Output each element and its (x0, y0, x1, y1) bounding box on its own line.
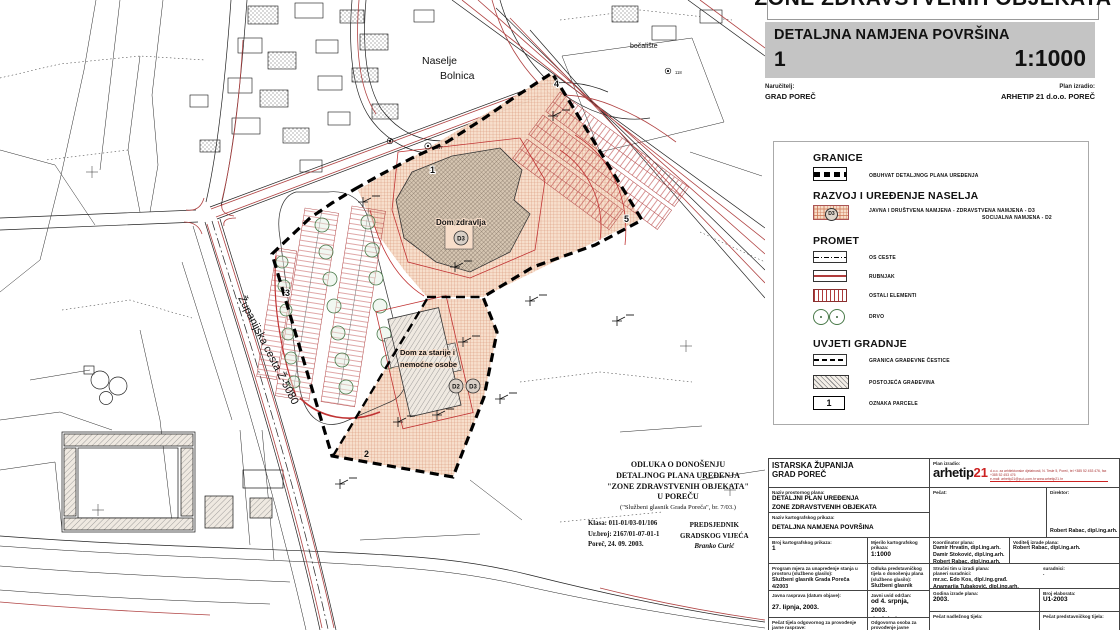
stamp-authority-label: Pečat nadležnog tijela: (933, 614, 1036, 620)
label-naselje: Naselje (422, 55, 457, 67)
parcel-number-sample: 1 (826, 398, 831, 408)
plan-name-1: DETALJNI PLAN UREĐENJA (772, 495, 926, 504)
cell-plan-name: Naziv prostornog plana: DETALJNI PLAN UR… (768, 487, 930, 513)
label-bocaliste: bočalište (630, 43, 658, 50)
survey-point-118-label: 118 (675, 70, 682, 75)
lead-name: Robert Rabac, dipl.ing.arh. (1013, 545, 1116, 552)
badge-d2-zone2: D2 (452, 385, 460, 391)
signature-name: Branko Curić (680, 541, 749, 552)
signature-role-1: PREDSJEDNIK (680, 520, 749, 531)
cell-public-debate: Javna rasprava (datum objave): 27. lipnj… (768, 590, 868, 618)
legend-granica-swatch (813, 354, 847, 366)
program-value-1: Službeni glasnik Grada Poreča (772, 577, 864, 584)
sheet-scale: 1:1000 (1014, 47, 1086, 70)
responsible-person-label: Odgovorna osoba za provođenje javne rasp… (871, 620, 926, 630)
client-author-row: Naručitelj: GRAD POREČ Plan izradio: ARH… (765, 84, 1095, 101)
label-dom-starije-1: Dom za starije i (400, 348, 455, 357)
county-name: ISTARSKA ŽUPANIJA (772, 461, 926, 470)
cell-stamp-authority: Pečat nadležnog tijela: (929, 611, 1040, 630)
year-value: 2003. (933, 596, 1036, 605)
decision-signature: PREDSJEDNIK GRADSKOG VIJEĆA Branko Curić (680, 520, 749, 552)
badge-d3-zone2: D3 (469, 385, 477, 391)
legend-zone-swatch: D3 (813, 205, 849, 220)
coordinator-2: Damir Stoković, dipl.ing.arh. (933, 552, 1006, 559)
arhetip-logo: arhetip21 d.o.o. za arhitektonske djelat… (933, 467, 1116, 482)
cell-public-review: Javni uvid održan: od 4. srpnja, 2003. d… (867, 590, 930, 618)
cell-team: Stručni tim u izradi plana: planeri sura… (929, 563, 1120, 589)
stamp-council-label: Pečat predstavničkog tijela: (1043, 614, 1116, 620)
stamp-debate-label: Pečat tijela odgovornog za provođenje ja… (772, 620, 864, 630)
city-name: GRAD POREČ (772, 470, 926, 479)
public-debate-value: 27. lipnja, 2003. (772, 604, 864, 613)
public-review-from: od 4. srpnja, 2003. (871, 598, 926, 615)
associates-label: suradnici: (1043, 566, 1065, 572)
cell-logo: Plan izradio: arhetip21 d.o.o. za arhite… (929, 458, 1120, 488)
main-title: ZONE ZDRAVSTVENIH OBJEKATA (754, 0, 1111, 11)
client-label: Naručitelj: (765, 84, 816, 90)
legend-osceste-label: OS CESTE (869, 255, 896, 261)
cell-program: Program mjera za unapređenje stanja u pr… (768, 563, 868, 591)
legend-ostali-swatch (813, 289, 847, 302)
badge-d3-zone1: D3 (457, 237, 465, 243)
bold-dash-icon (814, 172, 846, 177)
odluka-label: Odluka predstavničkog tijela o donošenju… (871, 566, 926, 583)
survey-point-117-label: 117 (436, 145, 443, 150)
decision-title-1: ODLUKA O DONOŠENJU (588, 460, 768, 471)
author-name: ARHETIP 21 d.o.o. POREČ (1001, 92, 1095, 101)
legend-javna-label-2: SOCIJALNA NAMJENA - D2 (982, 215, 1052, 221)
cell-county: ISTARSKA ŽUPANIJA GRAD POREČ (768, 458, 930, 488)
map-area[interactable]: 117 118 D3 D2 D3 Naselje Bolnica bočališ… (0, 0, 765, 630)
label-dom-zdravlja: Dom zdravlja (436, 218, 486, 227)
logo-21: 21 (974, 467, 988, 479)
legend-razvoj-title: RAZVOJ I UREĐENJE NASELJA (813, 190, 978, 202)
logo-text: arhetip (933, 467, 974, 479)
client-name: GRAD POREČ (765, 92, 816, 101)
sheet-title-bar: DETALJNA NAMJENA POVRŠINA 1 1:1000 (765, 22, 1095, 78)
decision-title-4: U POREČU (588, 492, 768, 503)
legend-promet-title: PROMET (813, 235, 859, 247)
label-dom-starije-2: nemoćne osobe (400, 360, 457, 369)
cell-year: Godina izrade plana: 2003. (929, 588, 1040, 612)
map-name-label: Naziv kartografskog prikaza: (772, 515, 926, 521)
legend-postojeca-swatch (813, 375, 849, 389)
cell-map-name: Naziv kartografskog prikaza: DETALJNA NA… (768, 512, 930, 538)
cell-sheet-no: Broj kartografskog prikaza: 1 (768, 537, 868, 564)
plan-sheet: 117 118 D3 D2 D3 Naselje Bolnica bočališ… (0, 0, 1120, 630)
right-panel: ZONE ZDRAVSTVENIH OBJEKATA DETALJNA NAMJ… (765, 0, 1120, 630)
legend-rubnjak-swatch (813, 270, 847, 282)
cell-elaborat: Broj elaborata: U1-2003 (1039, 588, 1120, 612)
title-block-table: ISTARSKA ŽUPANIJA GRAD POREČ Plan izradi… (768, 458, 1120, 630)
cell-director: Direktor: Robert Rabac, dipl.ing.arh. (1046, 487, 1120, 538)
public-debate-label: Javna rasprava (datum objave): (772, 593, 864, 599)
cell-scale: Mjerilo kartografskog prikaza: 1:1000 (867, 537, 930, 564)
legend-boundary-swatch (813, 167, 847, 181)
red-line-icon (814, 275, 846, 277)
program-label: Program mjera za unapređenje stanja u pr… (772, 566, 864, 577)
parcel-label-4: 4 (554, 79, 559, 89)
tree-circle-icon (813, 309, 829, 325)
legend-oznaka-swatch: 1 (813, 396, 845, 410)
cell-coordinator: Koordinator plana: Damir Hrvatin, dipl.i… (929, 537, 1010, 564)
legend-oznaka-label: OZNAKA PARCELE (869, 401, 918, 407)
tree-circle-icon (829, 309, 845, 325)
map-name-value: DETALJNA NAMJENA POVRŠINA (772, 524, 926, 533)
parcel-label-5: 5 (624, 214, 629, 224)
legend-javna-label-1: JAVNA I DRUŠTVENA NAMJENA - ZDRAVSTVENA … (869, 208, 1035, 214)
legend-rubnjak-label: RUBNJAK (869, 274, 895, 280)
main-title-box: ZONE ZDRAVSTVENIH OBJEKATA (767, 0, 1099, 20)
decision-text-block: ODLUKA O DONOŠENJU DETALJNOG PLANA UREĐE… (588, 460, 768, 550)
legend-uvjeti-title: UVJETI GRADNJE (813, 338, 907, 350)
dashed-line-icon (814, 359, 846, 361)
scale-value: 1:1000 (871, 551, 926, 560)
legend-ostali-label: OSTALI ELEMENTI (869, 293, 917, 299)
decision-title-3: "ZONE ZDRAVSTVENIH OBJEKATA" (588, 482, 768, 493)
scale-label: Mjerilo kartografskog prikaza: (871, 540, 926, 551)
sheet-number: 1 (774, 49, 786, 70)
decision-gazette: ("Službeni glasnik Grada Poreča", br. 7/… (588, 503, 768, 512)
parcel-label-3: 3 (285, 288, 290, 298)
parcel-label-2: 2 (364, 449, 369, 459)
cell-stamp-debate: Pečat tijela odgovornog za provođenje ja… (768, 617, 868, 630)
logo-address: d.o.o. za arhitektonske djelatnosti, N. … (990, 469, 1108, 482)
cell-stamp: Pečat: (929, 487, 1047, 538)
sheet-title: DETALJNA NAMJENA POVRŠINA (774, 27, 1086, 43)
legend-osceste-swatch (813, 251, 847, 263)
author-label: Plan izradio: (1001, 84, 1095, 90)
label-bolnica: Bolnica (440, 70, 475, 82)
legend: GRANICE OBUHVAT DETALJNOG PLANA UREĐENJA… (773, 141, 1089, 425)
parcel-label-1: 1 (430, 165, 435, 175)
legend-granice-title: GRANICE (813, 152, 863, 164)
cell-stamp-council: Pečat predstavničkog tijela: (1039, 611, 1120, 630)
cell-odluka: Odluka predstavničkog tijela o donošenju… (867, 563, 930, 591)
legend-drvo-label: DRVO (869, 314, 884, 320)
d3-badge-icon: D3 (825, 208, 838, 221)
director-label: Direktor: (1050, 490, 1116, 496)
dash-dot-line-icon (814, 257, 846, 258)
team-member-1: mr.sc. Edo Kos, dipl.ing.građ. (933, 577, 1037, 584)
legend-granica-label: GRANICA GRAĐEVNE ČESTICE (869, 358, 950, 364)
sheet-no-value: 1 (772, 545, 864, 554)
cell-lead: Voditelj izrade plana: Robert Rabac, dip… (1009, 537, 1120, 564)
stamp-label: Pečat: (933, 490, 1043, 496)
director-name: Robert Rabac, dipl.ing.arh. (1050, 528, 1117, 535)
legend-postojeca-label: POSTOJEĆA GRAĐEVINA (869, 380, 935, 386)
associates-value: . (1043, 571, 1065, 578)
signature-role-2: GRADSKOG VIJEĆA (680, 531, 749, 542)
legend-drvo-swatch (813, 309, 853, 324)
legend-obuhvat-label: OBUHVAT DETALJNOG PLANA UREĐENJA (869, 173, 979, 179)
cell-responsible-person: Odgovorna osoba za provođenje javne rasp… (867, 617, 930, 630)
elaborat-value: U1-2003 (1043, 596, 1116, 605)
decision-title-2: DETALJNOG PLANA UREĐENJA (588, 471, 768, 482)
coordinator-1: Damir Hrvatin, dipl.ing.arh. (933, 545, 1006, 552)
